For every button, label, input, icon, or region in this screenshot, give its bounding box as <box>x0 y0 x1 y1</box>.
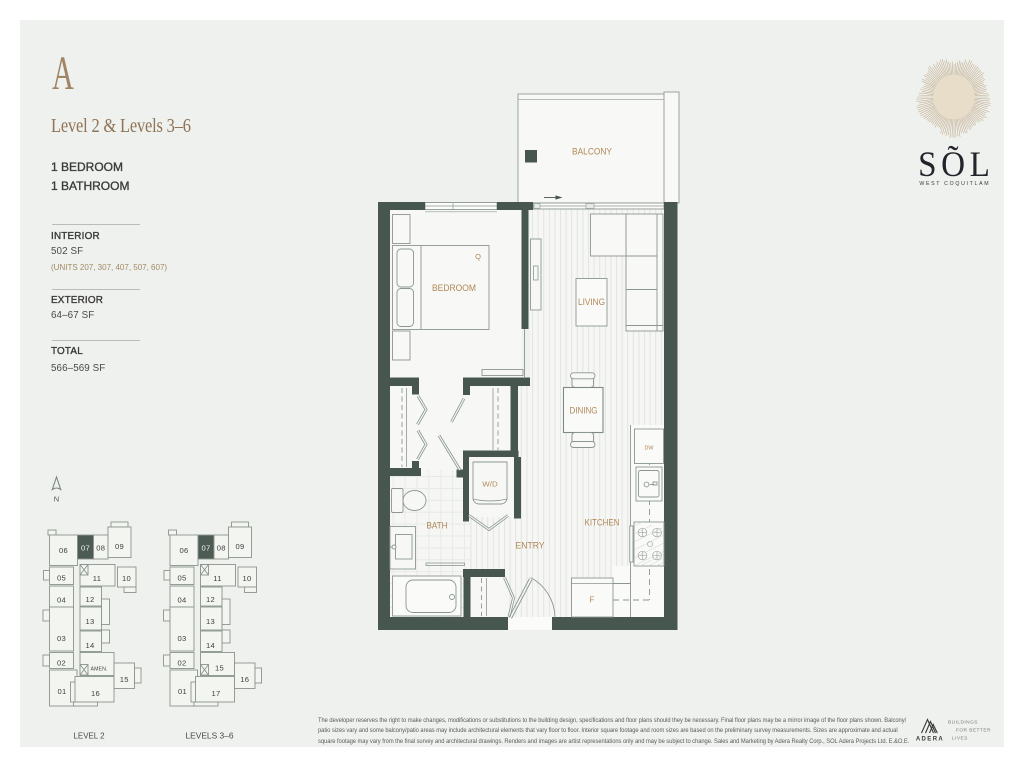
svg-text:LIVES: LIVES <box>952 736 968 742</box>
svg-text:F: F <box>590 596 595 605</box>
svg-text:07: 07 <box>81 544 90 553</box>
svg-text:02: 02 <box>57 659 66 668</box>
svg-text:04: 04 <box>177 596 186 605</box>
svg-text:10: 10 <box>122 574 131 583</box>
svg-text:03: 03 <box>57 634 66 643</box>
svg-text:11: 11 <box>213 574 221 583</box>
svg-text:02: 02 <box>177 659 186 668</box>
svg-text:BEDROOM: BEDROOM <box>432 283 476 293</box>
svg-text:06: 06 <box>59 546 68 555</box>
svg-text:LEVEL 2: LEVEL 2 <box>74 732 106 741</box>
svg-text:DW: DW <box>645 446 655 452</box>
svg-text:01: 01 <box>57 687 66 696</box>
svg-text:13: 13 <box>206 617 215 626</box>
svg-text:08: 08 <box>96 544 105 553</box>
svg-text:DINING: DINING <box>570 406 598 416</box>
svg-text:01: 01 <box>178 687 187 696</box>
svg-text:14: 14 <box>85 641 94 650</box>
svg-text:BUILDINGS: BUILDINGS <box>948 720 978 726</box>
svg-text:12: 12 <box>85 595 94 604</box>
svg-text:10: 10 <box>242 574 251 583</box>
svg-text:09: 09 <box>115 542 124 551</box>
svg-text:16: 16 <box>240 675 249 684</box>
svg-text:13: 13 <box>85 617 94 626</box>
svg-text:15: 15 <box>120 675 129 684</box>
svg-text:05: 05 <box>57 574 66 583</box>
svg-text:KITCHEN: KITCHEN <box>585 518 620 528</box>
svg-text:03: 03 <box>177 634 186 643</box>
svg-text:N: N <box>54 495 59 504</box>
svg-text:16: 16 <box>91 689 100 698</box>
svg-text:07: 07 <box>201 544 210 553</box>
svg-text:14: 14 <box>206 641 215 650</box>
svg-text:11: 11 <box>93 574 101 583</box>
svg-text:AMEN.: AMEN. <box>91 667 108 673</box>
svg-text:17: 17 <box>211 689 220 698</box>
svg-text:15: 15 <box>215 664 224 673</box>
svg-text:Q: Q <box>475 252 481 261</box>
svg-text:04: 04 <box>57 596 66 605</box>
svg-text:ENTRY: ENTRY <box>516 541 545 551</box>
svg-text:LEVELS 3–6: LEVELS 3–6 <box>186 732 235 741</box>
svg-text:BALCONY: BALCONY <box>572 147 612 157</box>
svg-text:09: 09 <box>235 542 244 551</box>
svg-text:ADERA: ADERA <box>916 737 944 743</box>
svg-text:W/D: W/D <box>482 482 498 489</box>
svg-text:BATH: BATH <box>427 521 448 531</box>
svg-text:LIVING: LIVING <box>578 297 605 307</box>
svg-text:08: 08 <box>217 544 226 553</box>
svg-text:12: 12 <box>206 595 215 604</box>
svg-text:05: 05 <box>177 574 186 583</box>
svg-text:FOR BETTER: FOR BETTER <box>956 728 991 734</box>
svg-text:06: 06 <box>179 546 188 555</box>
